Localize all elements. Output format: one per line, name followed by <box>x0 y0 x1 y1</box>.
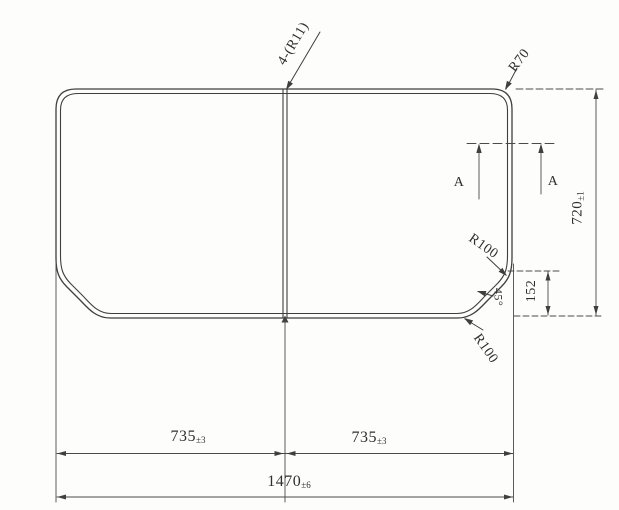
width-total-tolerance: ±6 <box>301 480 310 490</box>
dimension-lines <box>57 90 596 497</box>
panel-outline-outer <box>56 89 512 318</box>
width-left-tolerance: ±3 <box>196 435 205 445</box>
drawing-linework <box>0 0 619 510</box>
leader-arrowheads <box>286 81 512 325</box>
label-section-left: A <box>454 175 465 191</box>
height-value: 720 <box>570 201 586 225</box>
label-width-right: 735±3 <box>352 429 387 447</box>
center-divider <box>283 89 287 318</box>
leader-lines <box>287 32 517 330</box>
height-tolerance: ±1 <box>576 191 586 200</box>
width-left-value: 735 <box>171 428 197 445</box>
label-chamfer-angle: 45° <box>491 288 506 306</box>
width-total-value: 1470 <box>267 473 301 490</box>
arrowheads <box>57 90 599 500</box>
label-section-right: A <box>548 174 559 190</box>
section-arrow-left-head <box>476 144 481 154</box>
label-width-left: 735±3 <box>171 428 206 446</box>
width-right-value: 735 <box>352 429 378 446</box>
width-right-tolerance: ±3 <box>377 436 386 446</box>
section-arrow-right-head <box>538 144 543 154</box>
drawing-canvas: 4-(R11) R70 A A 720±1 152 R100 45° R100 … <box>0 0 619 510</box>
label-width-total: 1470±6 <box>267 473 310 491</box>
label-chamfer-height: 152 <box>524 280 540 303</box>
label-height-dim: 720±1 <box>570 191 587 224</box>
panel-outline-inner <box>61 94 508 314</box>
extension-lines <box>56 89 604 502</box>
